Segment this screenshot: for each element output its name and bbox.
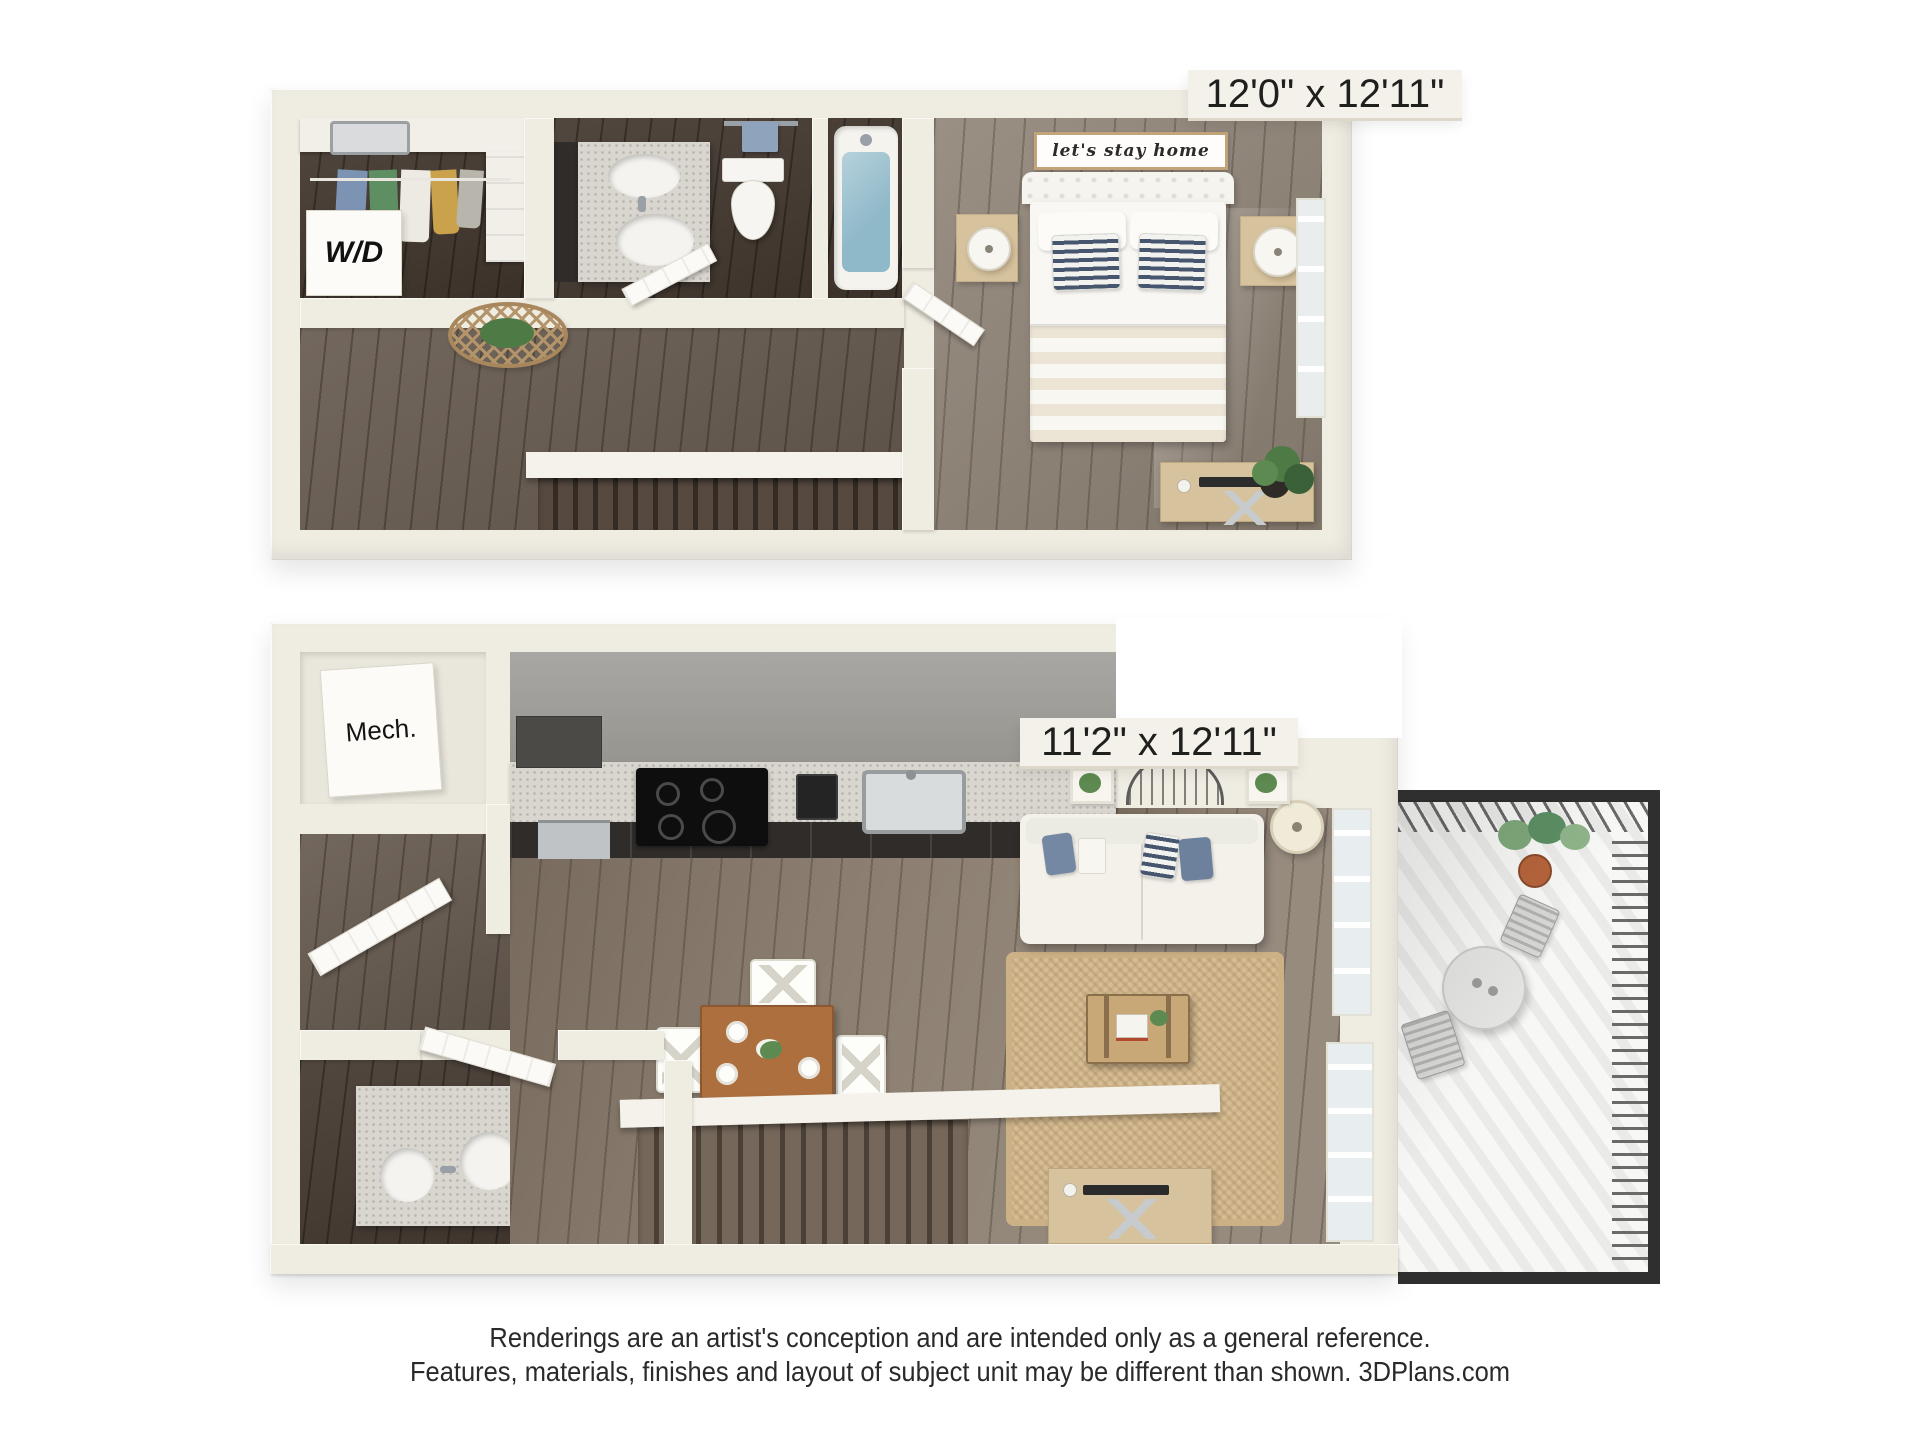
patio-door [1326, 1042, 1374, 1242]
desk-chair [1097, 1199, 1167, 1239]
plant-foliage [1284, 464, 1314, 494]
upper-floor-dimension-tag: 12'0" x 12'11" [1188, 70, 1462, 118]
planter-greenery [1079, 773, 1101, 793]
second-floor-plan: W/D let's stay home [270, 88, 1352, 560]
clothes-rod [310, 178, 510, 181]
bedroom-window [1296, 198, 1326, 418]
floor-lamp [1270, 800, 1324, 854]
walk-in-closet: W/D [300, 118, 524, 298]
throw-pillow-blue [1041, 832, 1076, 876]
accent-pillow-striped [1137, 233, 1207, 291]
interior-wall [902, 118, 934, 268]
mechanical-label: Mech. [345, 712, 418, 748]
stove-burner [702, 810, 736, 844]
lower-floor-dimension-tag: 11'2" x 12'11" [1020, 718, 1298, 766]
wall-sign-text: let's stay home [1052, 139, 1210, 163]
throw-pillow-blue [1178, 837, 1214, 882]
toilet-bowl [731, 180, 775, 240]
stove-burner [656, 782, 680, 806]
sofa [1020, 814, 1264, 944]
stove-burner [658, 814, 684, 840]
coffee-maker [796, 774, 838, 820]
lower-floor-dimension-label: 11'2" x 12'11" [1041, 720, 1277, 764]
place-setting [798, 1057, 820, 1079]
dishwasher [538, 820, 610, 859]
kitchen-sink [862, 770, 966, 834]
nightstand [956, 214, 1018, 282]
console-desk [1048, 1168, 1212, 1244]
mechanical-unit: Mech. [320, 662, 443, 798]
dining-chair [836, 1035, 886, 1101]
tub-partition-wall [812, 118, 828, 298]
lamp-stem [1292, 822, 1302, 832]
interior-wall [300, 1030, 420, 1060]
bed [1022, 172, 1234, 444]
wall-sign: let's stay home [1034, 132, 1228, 170]
potted-plant [1250, 446, 1314, 512]
stove-burner [700, 778, 724, 802]
dining-table [700, 1005, 834, 1099]
refrigerator [516, 716, 602, 768]
cooktop-stove [636, 768, 768, 846]
tub-faucet [860, 134, 872, 146]
flower-centerpiece [756, 1039, 782, 1059]
entry-hall [300, 834, 510, 1030]
stacked-books [1116, 1014, 1148, 1038]
sink-basin [380, 1148, 434, 1202]
staircase-upper [538, 476, 904, 530]
interior-wall [558, 1030, 664, 1060]
coffee-cup [1063, 1183, 1077, 1197]
desk-monitor [1083, 1185, 1169, 1195]
washer-dryer-unit: W/D [306, 210, 402, 296]
laundry-sink [330, 121, 410, 155]
living-window [1332, 808, 1372, 1016]
sink-basin [608, 154, 680, 198]
closet-cabinet [486, 152, 524, 262]
faucet [638, 196, 646, 212]
throw-pillow-striped [1139, 831, 1181, 880]
duvet [1030, 324, 1226, 442]
bathtub [834, 126, 898, 290]
interior-wall [664, 1060, 692, 1244]
planter-greenery [1255, 773, 1277, 793]
table-lamp [967, 227, 1011, 271]
accent-pillow-striped [1051, 233, 1121, 291]
washer-dryer-label: W/D [325, 236, 383, 270]
trunk-strap [1166, 996, 1171, 1058]
balcony-shadow [1398, 800, 1650, 1274]
disclaimer-line-2: Features, materials, finishes and layout… [86, 1356, 1833, 1388]
toilet-tank [722, 158, 784, 182]
headboard [1022, 172, 1234, 204]
interior-wall [486, 804, 510, 934]
table-plant [1150, 1010, 1168, 1026]
faucet [440, 1166, 456, 1173]
faucet [906, 770, 916, 780]
trunk-coffee-table [1086, 994, 1190, 1064]
disclaimer-line-1: Renderings are an artist's conception an… [86, 1322, 1833, 1354]
chair-back-pattern [842, 1041, 880, 1095]
chair-back-pattern [756, 965, 810, 1003]
front-door [308, 878, 453, 977]
dining-chair [750, 959, 816, 1009]
bathtub-water [842, 152, 890, 272]
toilet [722, 158, 782, 242]
interior-wall [300, 298, 904, 328]
trunk-strap [1104, 996, 1109, 1058]
towel [742, 122, 778, 152]
bedroom: let's stay home [934, 118, 1322, 530]
wall-planter [1246, 768, 1290, 804]
wall-wreath [448, 302, 568, 368]
upper-hallway [300, 328, 904, 530]
plant-foliage [1252, 460, 1278, 486]
coffee-cup [1177, 479, 1191, 493]
balcony [1398, 790, 1660, 1284]
exterior-wall [270, 1244, 1398, 1274]
place-setting [726, 1021, 748, 1043]
wall-planter [1070, 768, 1114, 804]
floor-plan-page: { "upper_floor": { "dimension_label": "1… [0, 0, 1920, 1440]
dining-set [700, 1005, 830, 1095]
upper-floor-dimension-label: 12'0" x 12'11" [1206, 72, 1445, 116]
mechanical-closet: Mech. [300, 652, 486, 804]
folded-blanket [1078, 838, 1106, 874]
stair-half-wall [526, 452, 904, 478]
wreath-greenery [480, 318, 534, 348]
upper-bathroom [554, 118, 902, 298]
interior-wall [902, 368, 934, 530]
interior-wall [524, 118, 554, 298]
place-setting [716, 1063, 738, 1085]
